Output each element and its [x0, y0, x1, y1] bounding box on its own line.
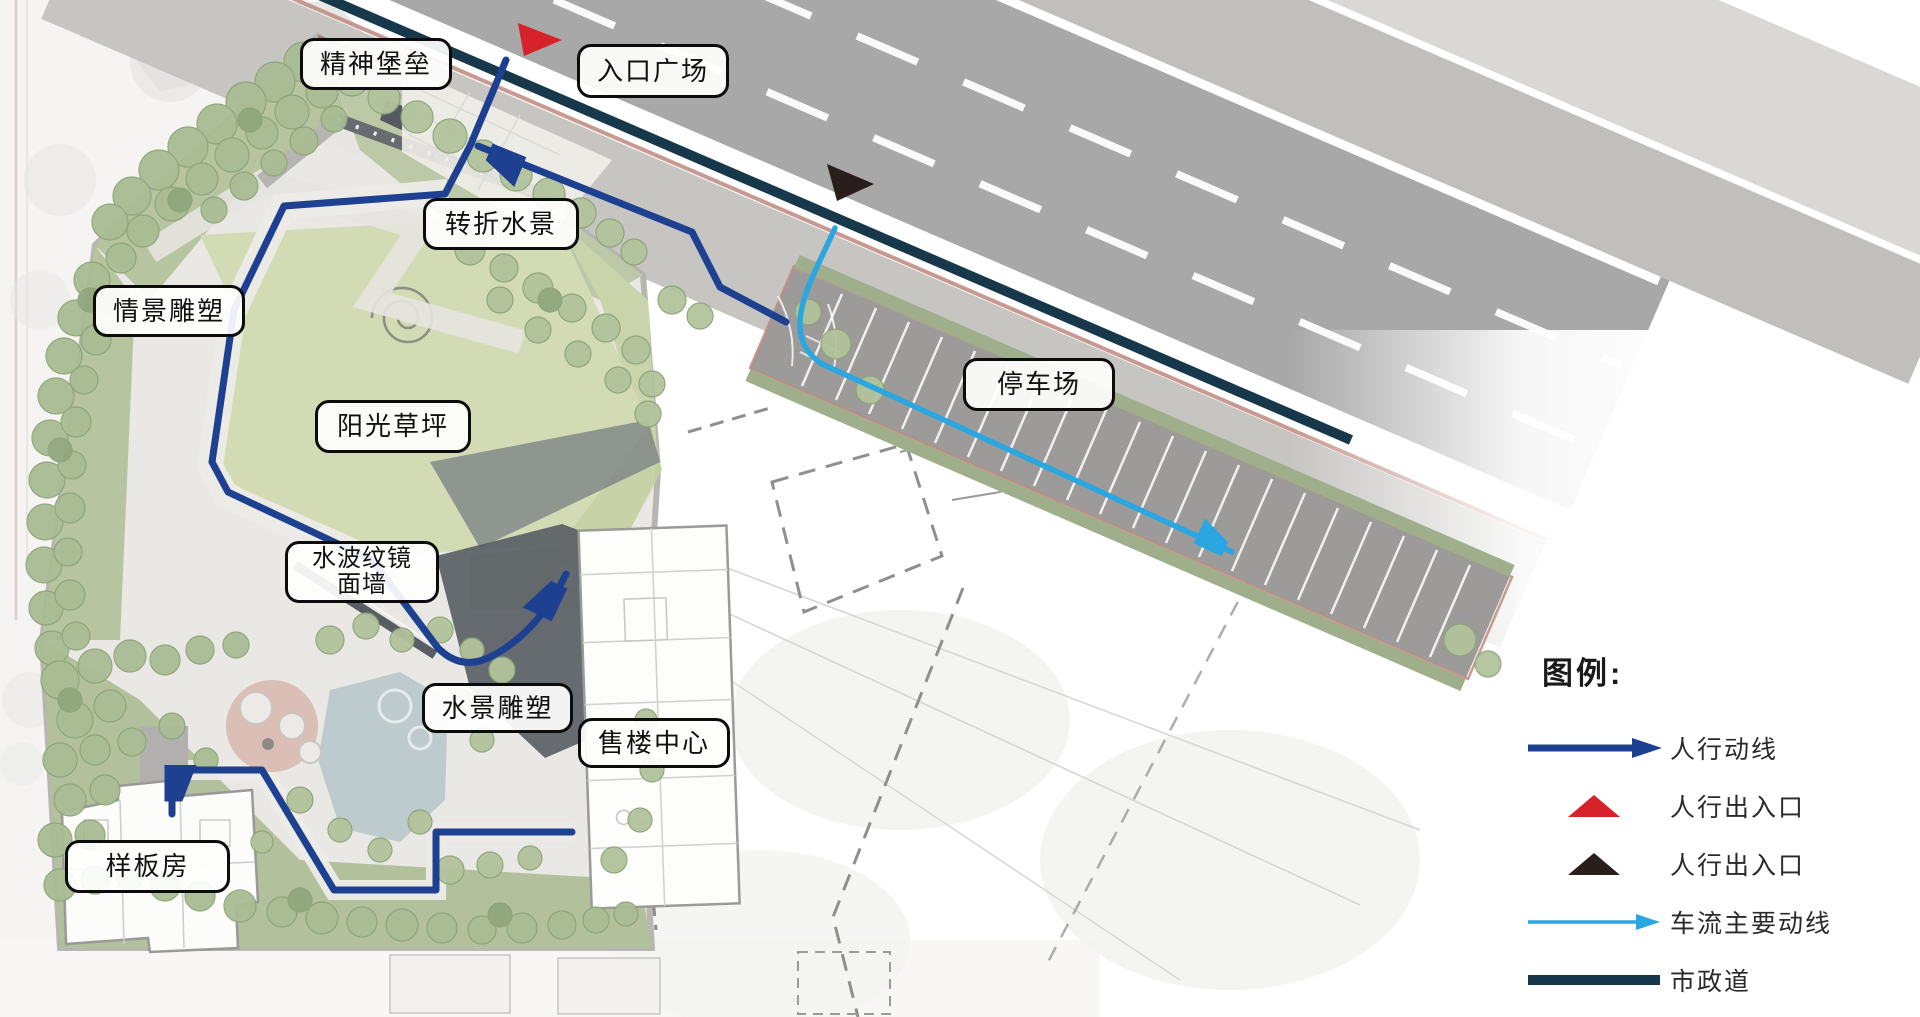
legend-row-municipal-road: 市政道 [1520, 951, 1880, 1009]
legend: 图例: 人行动线 人行出入口 人行出入口 车流主要动线 市政道 [1520, 648, 1880, 1009]
label-waterscape-sculpture: 水景雕塑 [422, 683, 573, 733]
label-scene-sculpture: 情景雕塑 [93, 285, 245, 337]
label-water-ripple-mirror-wall: 水波纹镜 面墙 [285, 541, 439, 603]
vehicle-thin-arrow-right-icon [1520, 910, 1670, 934]
pedestrian-arrow-right-icon [1520, 736, 1670, 760]
label-sales-center: 售楼中心 [578, 718, 730, 768]
red-triangle-up-icon [1520, 791, 1670, 821]
legend-row-entrance-red: 人行出入口 [1520, 777, 1880, 835]
label-model-house: 样板房 [65, 840, 230, 893]
site-plan-page: 精神堡垒 入口广场 转折水景 情景雕塑 阳光草坪 停车场 水波纹镜 面墙 水景雕… [0, 0, 1920, 1017]
label-spirit-fortress: 精神堡垒 [300, 38, 452, 90]
label-entrance-plaza: 入口广场 [577, 44, 729, 98]
legend-row-pedestrian: 人行动线 [1520, 719, 1880, 777]
municipal-road-thick-line-icon [1520, 971, 1670, 989]
label-turning-waterscape: 转折水景 [423, 198, 579, 250]
black-triangle-up-icon [1520, 849, 1670, 879]
legend-title: 图例: [1542, 648, 1880, 693]
legend-row-entrance-black: 人行出入口 [1520, 835, 1880, 893]
legend-row-vehicle: 车流主要动线 [1520, 893, 1880, 951]
label-parking-lot: 停车场 [963, 358, 1115, 411]
label-sunshine-lawn: 阳光草坪 [315, 400, 471, 453]
